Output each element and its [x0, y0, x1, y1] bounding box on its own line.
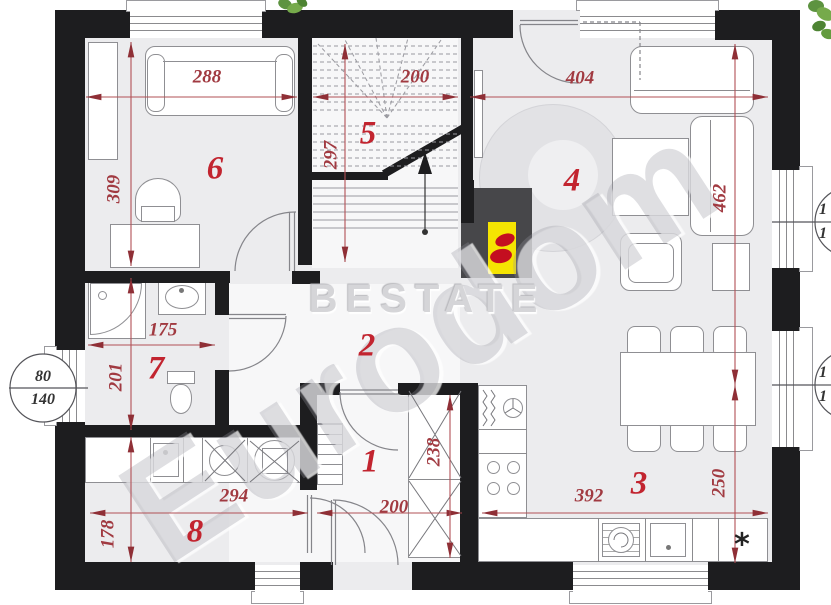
dimension-label: 392 [575, 487, 604, 506]
room-number-2: 2 [359, 330, 376, 363]
wall [262, 10, 513, 38]
window-glazing [255, 585, 300, 586]
desk [110, 224, 200, 268]
wall [772, 40, 800, 170]
window-glazing [76, 350, 77, 422]
window-glazing [130, 16, 262, 17]
room-number-4: 4 [564, 165, 581, 198]
room-number-1: 1 [362, 446, 379, 479]
dimension-label: 288 [193, 68, 222, 87]
watermark-center: BESTATE [277, 277, 577, 322]
window-glazing [573, 578, 708, 579]
kitchen-sink-tap [666, 545, 671, 550]
window-size-label: 80 [35, 369, 51, 385]
dimension-label: 200 [401, 68, 430, 87]
window-glazing [580, 16, 715, 17]
wall [55, 10, 85, 350]
window-glazing [573, 585, 708, 586]
counter-divider [718, 518, 719, 562]
interior-wall [85, 271, 230, 283]
room-number-7: 7 [148, 353, 165, 386]
dimension-label: 175 [149, 321, 178, 340]
window-glazing [580, 30, 715, 31]
dining-chair [627, 424, 661, 452]
door-leaf-panel [474, 70, 483, 158]
interior-wall [460, 395, 478, 565]
extractor-fan [503, 398, 523, 418]
window-glazing [779, 170, 780, 268]
dining-chair [670, 424, 704, 452]
dimension-label: 297 [322, 141, 341, 170]
dining-chair [627, 326, 661, 354]
hob-burner [487, 461, 500, 474]
plant-icon [808, 0, 831, 41]
window-glazing [69, 350, 70, 422]
window-sill [799, 327, 813, 451]
window [130, 10, 262, 38]
floor-plan: Eurodom BESTATE [0, 0, 831, 605]
window-label-circle [815, 351, 831, 419]
sofa-armrest [275, 54, 293, 112]
kitchen-sink [650, 523, 686, 557]
dimension-label: 462 [711, 184, 730, 213]
wall [715, 10, 800, 40]
window-glazing [130, 30, 262, 31]
window-label-circle [815, 188, 831, 256]
sofa-back-line [163, 46, 277, 62]
room-number-5: 5 [360, 118, 377, 151]
interior-wall [215, 283, 229, 315]
wall [772, 268, 800, 331]
room-number-8: 8 [187, 516, 204, 549]
window-glazing [786, 170, 787, 268]
counter-divider [478, 429, 527, 430]
sofa-armrest [147, 54, 165, 112]
dimension-label: 200 [380, 498, 409, 517]
dimension-label: 309 [105, 175, 124, 204]
dining-chair [670, 326, 704, 354]
interior-wall [461, 38, 473, 190]
window-size-label: 1 [819, 365, 827, 381]
window-glazing [793, 170, 794, 268]
wall [412, 562, 573, 590]
shower-drain [98, 291, 107, 300]
wall [300, 562, 333, 590]
window-glazing [580, 23, 715, 24]
hob-burner [507, 482, 520, 495]
counter-divider [692, 518, 693, 562]
window-glazing [779, 331, 780, 447]
dimension-label: 178 [99, 520, 118, 549]
dimension-label: 294 [220, 487, 249, 506]
dimension-label: 201 [107, 363, 126, 392]
hob-burner [487, 482, 500, 495]
window [580, 10, 715, 38]
window-glazing [255, 578, 300, 579]
room-number-3: 3 [631, 468, 648, 501]
kitchen-star-symbol: * [734, 528, 750, 563]
interior-wall [298, 38, 312, 265]
window-glazing [255, 571, 300, 572]
room-number-6: 6 [207, 153, 224, 186]
dining-table [620, 352, 756, 426]
wall [708, 562, 800, 590]
counter-divider [598, 518, 599, 562]
washbasin-tap [179, 288, 184, 293]
dimension-label: 250 [710, 469, 729, 498]
wardrobe [88, 42, 118, 160]
dishwasher-dial [608, 527, 634, 553]
window-glazing [786, 331, 787, 447]
wardrobe-divider [408, 479, 462, 480]
window-size-label: 140 [31, 392, 55, 408]
dimension-label: 238 [425, 438, 444, 467]
dining-chair [713, 424, 747, 452]
window-glazing [130, 23, 262, 24]
desk-chair-seat [141, 206, 175, 222]
toilet-tank [167, 371, 195, 384]
window-glazing [573, 571, 708, 572]
stair-break-line [312, 172, 388, 180]
window-size-label: 1 [819, 226, 827, 242]
counter-divider [478, 453, 527, 454]
window-sill [251, 591, 304, 604]
window-size-label: 1 [819, 389, 827, 405]
window-glazing [793, 331, 794, 447]
dimension-label: 404 [566, 69, 595, 88]
window [55, 350, 85, 422]
window-sill [799, 166, 813, 272]
dining-chair [713, 326, 747, 354]
counter-divider [645, 518, 646, 562]
window-sill [569, 591, 712, 604]
hob-burner [507, 461, 520, 474]
window-glazing [62, 350, 63, 422]
window-size-label: 1 [819, 202, 827, 218]
